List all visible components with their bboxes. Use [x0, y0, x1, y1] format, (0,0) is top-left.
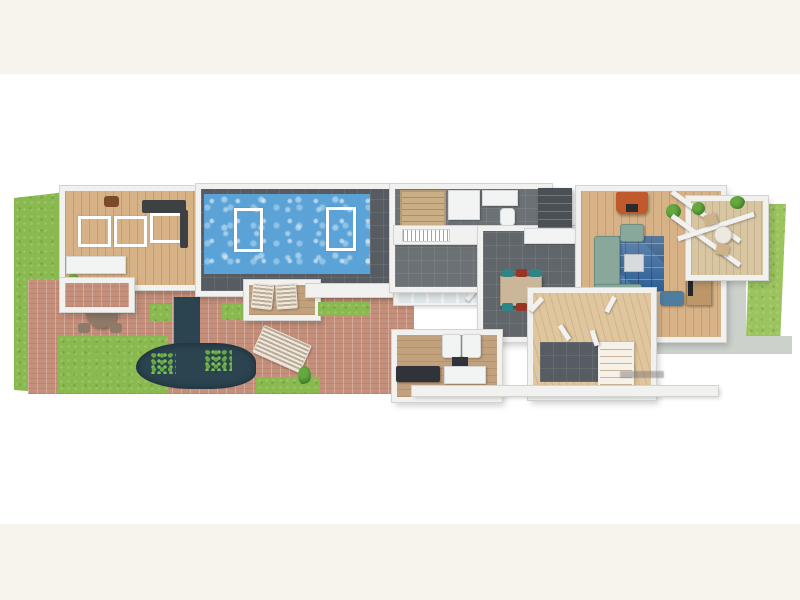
sofa-icon	[594, 236, 620, 290]
patio-plant-1	[692, 202, 705, 215]
pool-marker-1	[234, 208, 263, 252]
armchair-steel-blue	[660, 291, 684, 306]
island-chair-2	[516, 269, 527, 277]
planter-grass	[318, 302, 370, 316]
island-chair-1	[502, 269, 513, 277]
fireplace-hearth	[626, 204, 638, 212]
deck-parapet-wall	[306, 284, 394, 297]
pond-lilies-2	[204, 349, 232, 371]
letterbox-top	[0, 0, 800, 74]
front-wall	[412, 386, 718, 396]
bistro-chair-2	[715, 243, 730, 256]
patio-plant-2	[730, 196, 745, 209]
island-chair-3	[530, 269, 541, 277]
pond-lilies-1	[150, 352, 176, 374]
gym-rug-2	[114, 216, 147, 247]
porch-left	[60, 278, 134, 312]
bathroom-vanity	[482, 190, 518, 206]
gym-equipment-2	[180, 210, 188, 248]
coffee-table	[624, 254, 644, 272]
gym-sideboard	[66, 256, 126, 274]
gym-rug-3	[150, 213, 183, 243]
radiator	[402, 229, 450, 242]
bistro-table	[714, 226, 732, 244]
island-chair-5	[516, 303, 527, 311]
toilet	[500, 208, 515, 226]
sauna-benches	[400, 190, 446, 230]
kitchen-counter	[524, 228, 580, 244]
pool-marker-2	[326, 207, 356, 251]
water-rill	[174, 297, 200, 347]
porch-lounger-1	[251, 283, 274, 310]
shower-unit	[448, 190, 480, 220]
gym-rug-1	[78, 216, 111, 247]
gym-armchair	[104, 196, 119, 207]
deck-grass-small-1	[150, 304, 172, 321]
deck-plant-2	[298, 366, 311, 385]
deck-ottoman	[444, 366, 486, 384]
letterbox-bottom	[0, 524, 800, 600]
entry-tiles	[540, 342, 598, 382]
armchair-sage	[620, 224, 644, 242]
watermark-smudge	[620, 371, 664, 378]
staircase-icon	[538, 188, 572, 228]
deck-chair-white-2	[462, 334, 481, 358]
porch-lounger-2	[275, 283, 298, 309]
deck-bench-dark	[396, 366, 440, 382]
deck-side-table	[452, 357, 468, 366]
outdoor-chair-3	[78, 323, 90, 333]
floorplan-scene	[0, 74, 800, 524]
deck-chair-white-1	[442, 334, 461, 358]
outdoor-chair-4	[110, 323, 122, 333]
island-chair-4	[502, 303, 513, 311]
